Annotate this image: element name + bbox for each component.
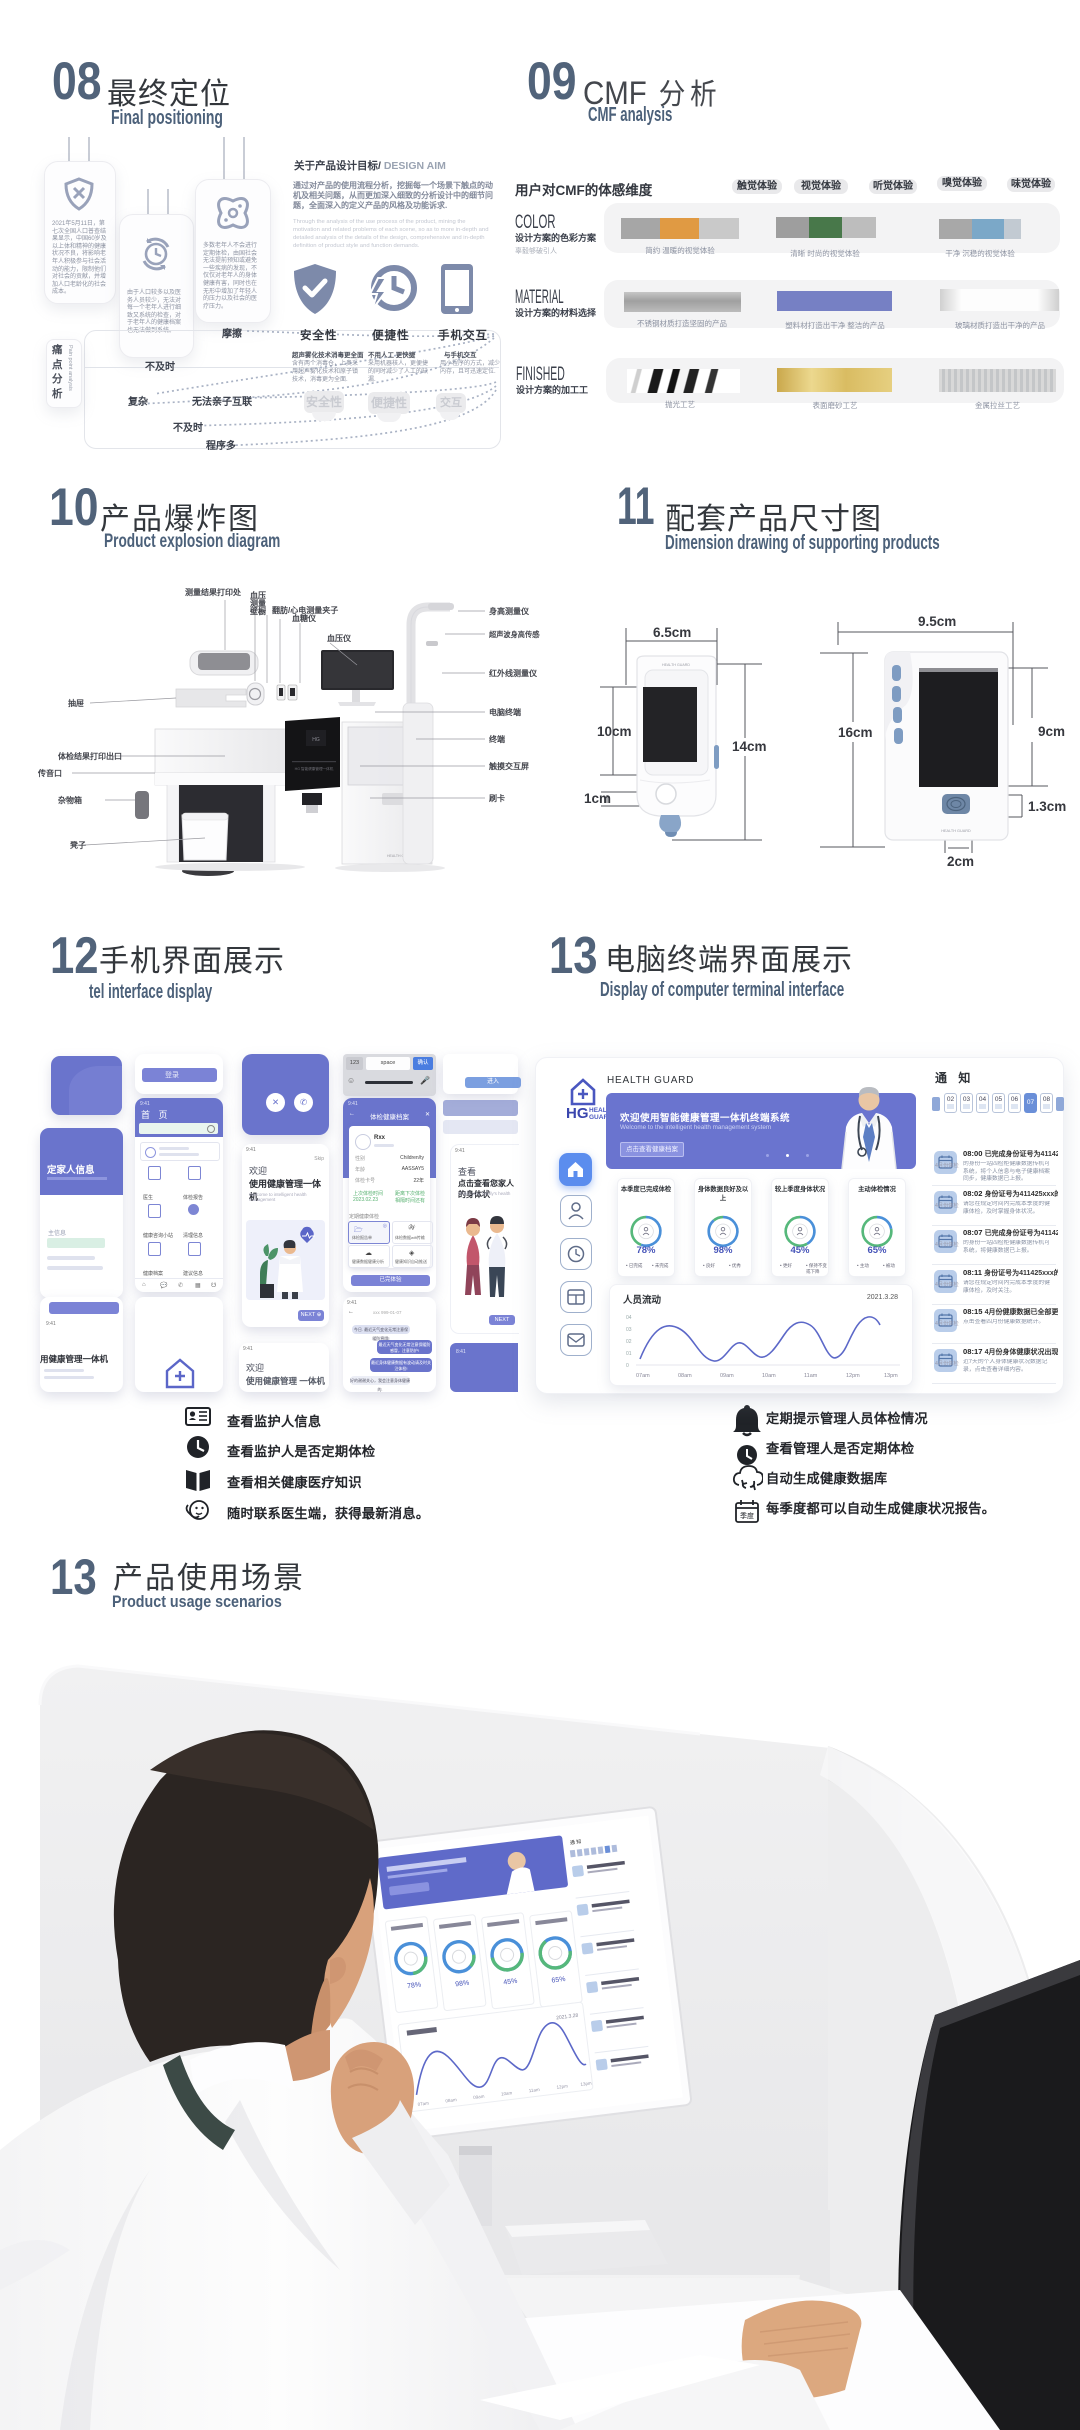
svg-text:02: 02 [626, 1339, 632, 1345]
svg-text:终端: 终端 [488, 734, 505, 744]
svg-text:杂物箱: 杂物箱 [58, 795, 82, 805]
svg-text:1.3cm: 1.3cm [1028, 799, 1066, 814]
svg-text:09am: 09am [720, 1373, 734, 1379]
svg-text:11am: 11am [804, 1373, 818, 1379]
svg-text:HEALTH GUARD: HEALTH GUARD [941, 829, 971, 833]
svg-text:9cm: 9cm [1038, 724, 1065, 739]
svg-text:测量结果打印处: 测量结果打印处 [185, 587, 242, 597]
svg-text:体检结果打印出口: 体检结果打印出口 [58, 751, 122, 761]
svg-text:10am: 10am [762, 1373, 776, 1379]
svg-text:12pm: 12pm [846, 1373, 860, 1379]
svg-text:04: 04 [626, 1315, 632, 1321]
svg-text:季度: 季度 [740, 1511, 754, 1520]
svg-text:超声波身高传感器: 超声波身高传感器 [488, 630, 540, 639]
svg-text:身高测量仪: 身高测量仪 [489, 606, 530, 616]
svg-text:03: 03 [626, 1327, 632, 1333]
svg-text:刷卡: 刷卡 [488, 793, 505, 803]
svg-text:红外线测量仪: 红外线测量仪 [489, 668, 538, 678]
svg-text:14cm: 14cm [732, 739, 767, 754]
svg-text:08am: 08am [678, 1373, 692, 1379]
svg-text:壁橱: 壁橱 [250, 606, 266, 616]
svg-text:凳子: 凳子 [69, 840, 86, 850]
svg-text:13pm: 13pm [884, 1373, 898, 1379]
svg-text:0: 0 [626, 1363, 629, 1369]
svg-text:HG: HG [312, 737, 320, 743]
svg-text:01: 01 [626, 1351, 632, 1357]
svg-text:电脑终端: 电脑终端 [489, 707, 521, 717]
svg-text:07am: 07am [636, 1373, 650, 1379]
svg-text:10cm: 10cm [597, 724, 632, 739]
svg-text:HG 智能健康管理一体机: HG 智能健康管理一体机 [295, 766, 334, 771]
svg-text:6.5cm: 6.5cm [653, 625, 691, 640]
svg-text:HG: HG [566, 1105, 589, 1120]
svg-text:1cm: 1cm [584, 791, 611, 806]
svg-text:血压仪: 血压仪 [327, 633, 352, 643]
svg-text:抽屉: 抽屉 [68, 698, 84, 708]
svg-text:16cm: 16cm [838, 725, 873, 740]
svg-text:通 知: 通 知 [569, 1838, 581, 1846]
svg-text:HEALTH GUARD: HEALTH GUARD [662, 663, 690, 667]
svg-text:触摸交互屏: 触摸交互屏 [489, 761, 529, 771]
svg-text:2cm: 2cm [947, 854, 974, 869]
svg-text:传音口: 传音口 [37, 768, 62, 778]
svg-text:血糖仪: 血糖仪 [292, 613, 317, 623]
svg-text:9.5cm: 9.5cm [918, 614, 956, 629]
